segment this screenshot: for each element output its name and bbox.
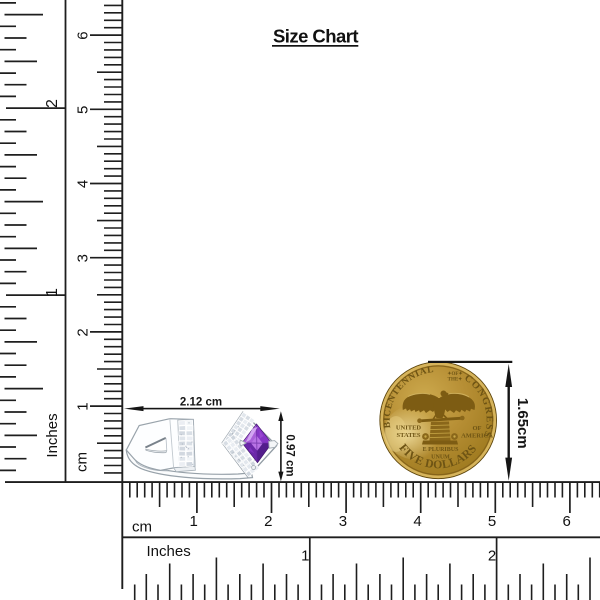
svg-text:6: 6 [75,31,92,39]
svg-text:6: 6 [563,513,571,530]
svg-text:Size Chart: Size Chart [273,26,358,47]
svg-text:Inches: Inches [44,413,61,457]
svg-text:1: 1 [301,548,309,565]
svg-text:5: 5 [488,513,496,530]
svg-text:4: 4 [75,180,92,188]
svg-text:✦OF✦: ✦OF✦ [447,371,462,377]
svg-text:3: 3 [339,513,347,530]
svg-text:2: 2 [488,548,496,565]
svg-text:UNITED: UNITED [396,425,422,432]
svg-text:0.97 cm: 0.97 cm [284,434,296,476]
svg-text:4: 4 [413,513,421,530]
svg-text:Inches: Inches [147,543,191,560]
svg-text:1.65cm: 1.65cm [514,398,531,449]
svg-text:5: 5 [75,106,92,114]
svg-text:3: 3 [75,254,92,262]
svg-text:STATES: STATES [397,432,421,439]
svg-text:cm: cm [132,519,152,536]
svg-text:1: 1 [75,402,92,410]
svg-text:AMERICA: AMERICA [461,433,493,440]
svg-text:2.12 cm: 2.12 cm [180,396,222,408]
svg-text:1: 1 [44,288,61,297]
svg-text:UNUM: UNUM [431,455,450,461]
svg-text:OF: OF [472,425,481,432]
svg-text:cm: cm [74,452,91,472]
svg-text:2: 2 [75,328,92,336]
svg-text:2: 2 [44,99,61,108]
svg-text:2: 2 [264,513,272,530]
svg-text:E PLURIBUS: E PLURIBUS [423,447,460,453]
svg-text:1: 1 [190,513,198,530]
svg-text:THE✦: THE✦ [448,377,463,383]
